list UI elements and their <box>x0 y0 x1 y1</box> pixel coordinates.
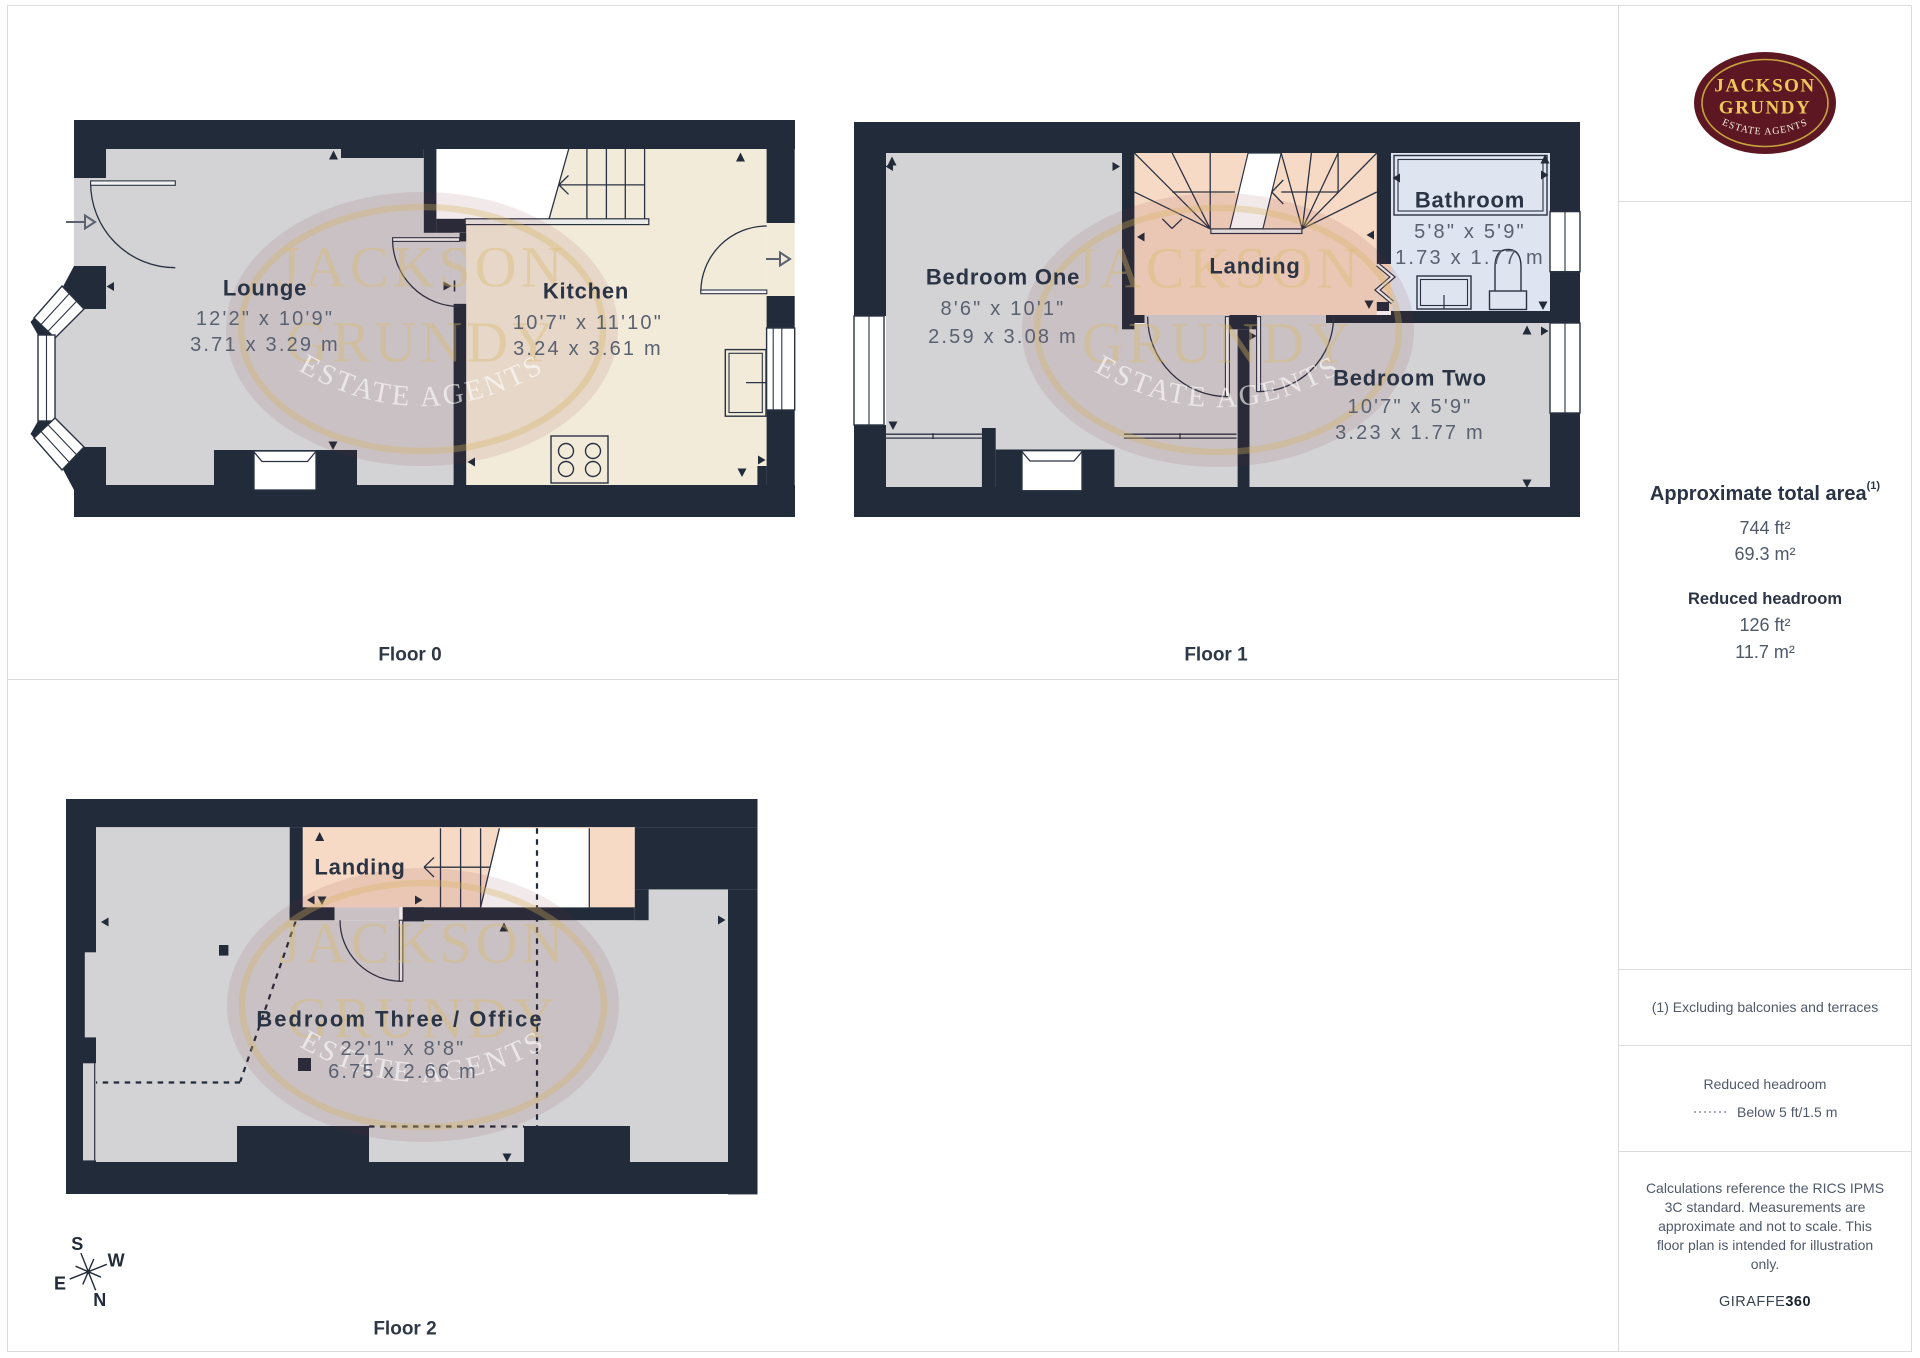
svg-text:JACKSON: JACKSON <box>1714 76 1815 97</box>
svg-text:Bedroom Two: Bedroom Two <box>1333 366 1487 391</box>
svg-text:Bedroom One: Bedroom One <box>926 265 1080 290</box>
svg-text:5'8" x 5'9": 5'8" x 5'9" <box>1414 221 1526 243</box>
svg-text:3.24 x 3.61 m: 3.24 x 3.61 m <box>513 338 663 360</box>
svg-text:3C standard. Measurements are: 3C standard. Measurements are <box>1665 1199 1866 1215</box>
svg-text:2.59 x 3.08 m: 2.59 x 3.08 m <box>928 326 1078 348</box>
svg-text:69.3 m²: 69.3 m² <box>1734 544 1795 564</box>
svg-text:6.75 x 2.66 m: 6.75 x 2.66 m <box>328 1061 478 1083</box>
svg-text:Landing: Landing <box>314 855 405 880</box>
svg-text:126 ft²: 126 ft² <box>1739 615 1790 635</box>
svg-text:approximate and not to scale.: approximate and not to scale. This <box>1658 1218 1872 1234</box>
svg-text:Bedroom Three / Office: Bedroom Three / Office <box>256 1007 543 1032</box>
svg-text:Floor 0: Floor 0 <box>378 645 441 666</box>
svg-text:1.73 x 1.77 m: 1.73 x 1.77 m <box>1395 247 1545 269</box>
svg-text:Reduced headroom: Reduced headroom <box>1704 1076 1827 1092</box>
svg-text:22'1" x 8'8": 22'1" x 8'8" <box>341 1038 466 1060</box>
svg-text:only.: only. <box>1751 1256 1780 1272</box>
svg-text:Calculations reference the RIC: Calculations reference the RICS IPMS <box>1646 1180 1884 1196</box>
svg-text:E: E <box>54 1274 66 1294</box>
svg-text:Lounge: Lounge <box>223 276 307 301</box>
svg-text:Landing: Landing <box>1209 254 1300 279</box>
svg-text:10'7" x 5'9": 10'7" x 5'9" <box>1348 396 1473 418</box>
svg-text:3.71 x 3.29 m: 3.71 x 3.29 m <box>190 334 340 356</box>
svg-text:11.7 m²: 11.7 m² <box>1735 642 1795 662</box>
svg-text:8'6" x 10'1": 8'6" x 10'1" <box>941 298 1066 320</box>
svg-text:Approximate total area(1): Approximate total area(1) <box>1650 480 1881 505</box>
svg-text:Below 5 ft/1.5 m: Below 5 ft/1.5 m <box>1737 1104 1837 1120</box>
svg-text:744 ft²: 744 ft² <box>1739 518 1790 538</box>
svg-text:Kitchen: Kitchen <box>543 279 629 304</box>
svg-text:S: S <box>71 1234 83 1254</box>
svg-text:GIRAFFE360: GIRAFFE360 <box>1719 1294 1811 1310</box>
svg-text:10'7" x 11'10": 10'7" x 11'10" <box>513 312 663 334</box>
svg-text:Bathroom: Bathroom <box>1415 188 1525 213</box>
svg-text:12'2" x 10'9": 12'2" x 10'9" <box>196 308 334 330</box>
svg-text:floor plan is intended for ill: floor plan is intended for illustration <box>1657 1237 1873 1253</box>
svg-text:(1) Excluding balconies and te: (1) Excluding balconies and terraces <box>1652 999 1878 1015</box>
svg-text:N: N <box>93 1290 106 1310</box>
svg-text:Floor 2: Floor 2 <box>373 1319 436 1340</box>
svg-text:GRUNDY: GRUNDY <box>1719 98 1811 119</box>
svg-text:Floor 1: Floor 1 <box>1184 645 1248 666</box>
svg-text:Reduced headroom: Reduced headroom <box>1688 590 1842 608</box>
svg-text:3.23 x 1.77 m: 3.23 x 1.77 m <box>1335 422 1485 444</box>
svg-text:W: W <box>108 1251 125 1271</box>
